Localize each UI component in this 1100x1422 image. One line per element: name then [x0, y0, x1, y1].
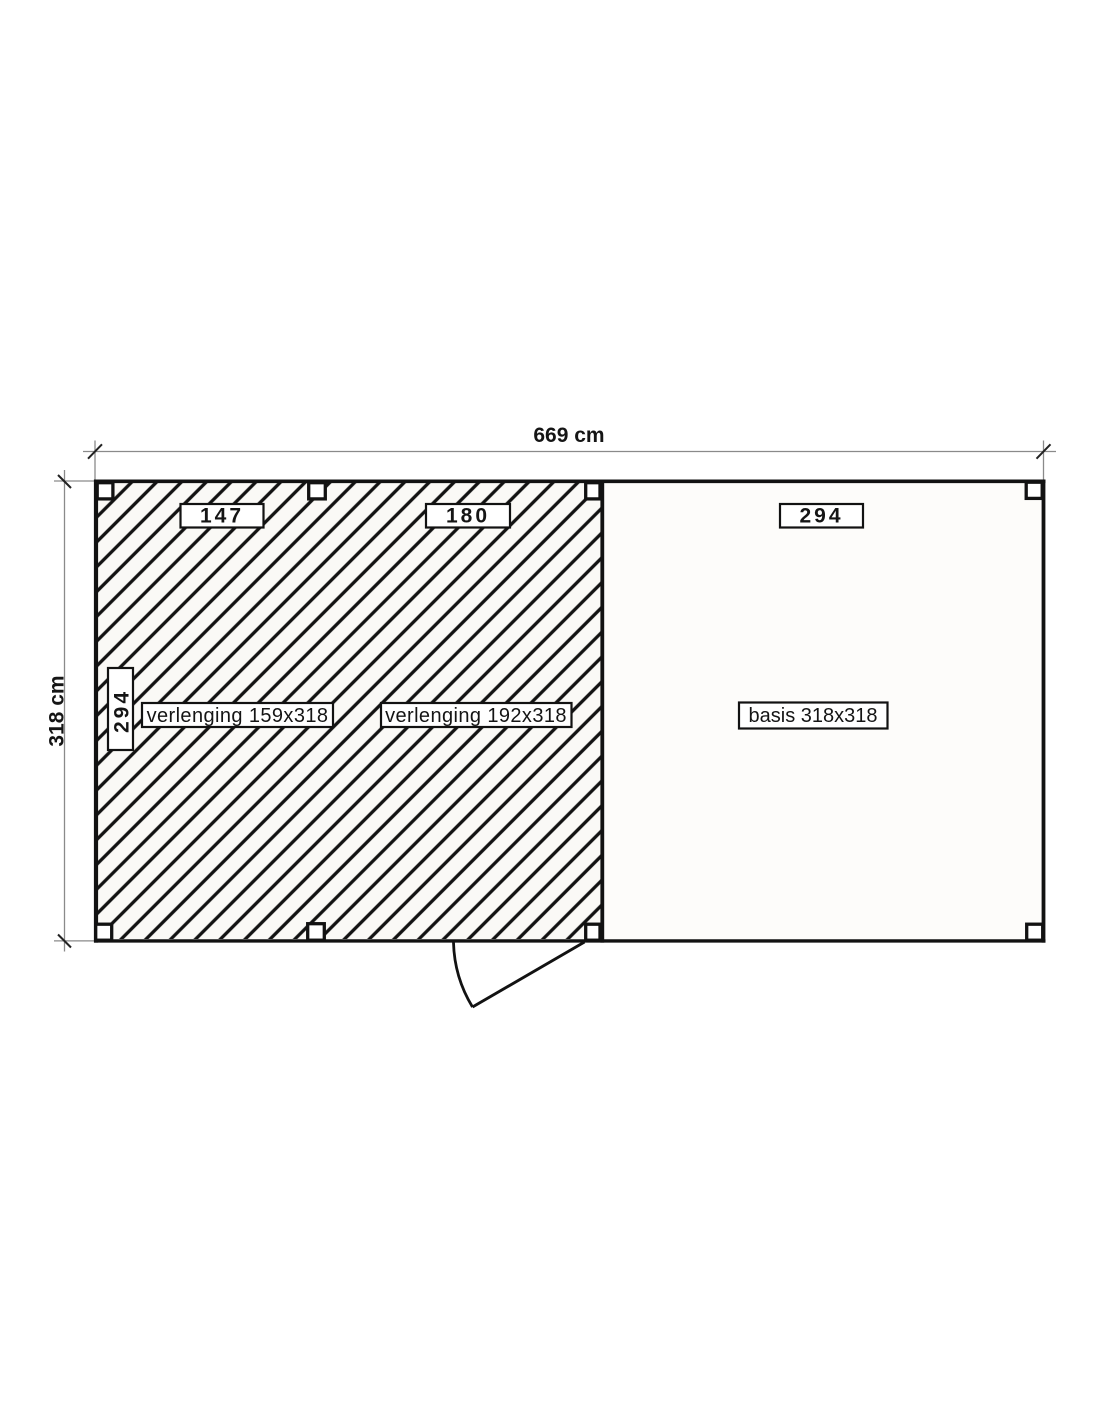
svg-text:147: 147 — [200, 505, 244, 528]
svg-text:verlenging 159x318: verlenging 159x318 — [147, 705, 329, 727]
svg-text:669 cm: 669 cm — [533, 424, 604, 447]
svg-text:verlenging 192x318: verlenging 192x318 — [385, 705, 567, 727]
svg-text:294: 294 — [111, 689, 134, 733]
svg-text:basis 318x318: basis 318x318 — [749, 705, 878, 727]
svg-text:180: 180 — [446, 505, 490, 528]
svg-text:294: 294 — [799, 505, 843, 528]
svg-text:318 cm: 318 cm — [46, 675, 69, 746]
